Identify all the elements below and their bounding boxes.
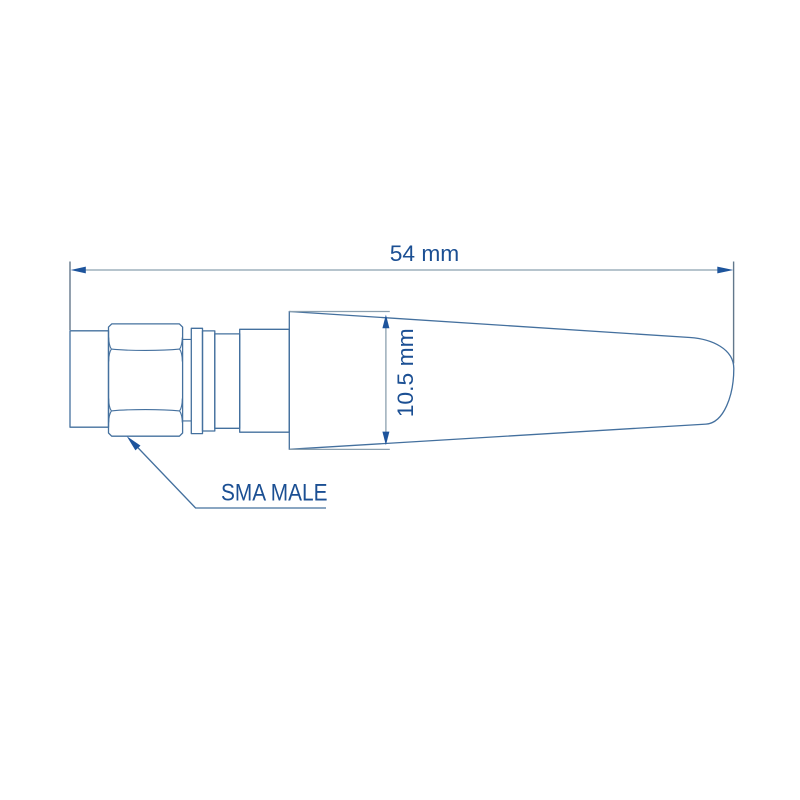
svg-text:10.5 mm: 10.5 mm bbox=[393, 328, 418, 417]
svg-text:54 mm: 54 mm bbox=[390, 241, 460, 266]
svg-text:SMA MALE: SMA MALE bbox=[221, 481, 328, 507]
